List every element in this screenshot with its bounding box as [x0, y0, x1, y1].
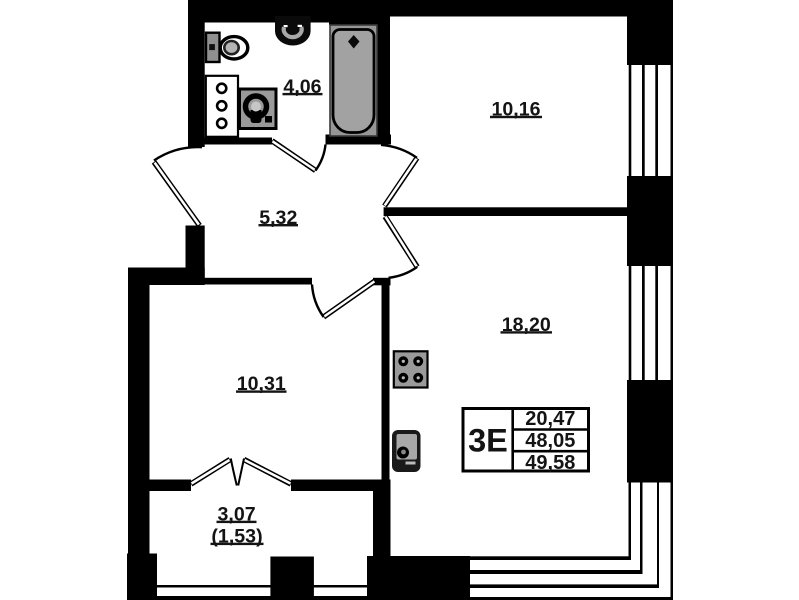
svg-text:49,58: 49,58: [525, 452, 575, 474]
svg-text:20,47: 20,47: [525, 408, 575, 430]
svg-text:3Е: 3Е: [468, 423, 508, 459]
svg-text:48,05: 48,05: [525, 430, 575, 452]
